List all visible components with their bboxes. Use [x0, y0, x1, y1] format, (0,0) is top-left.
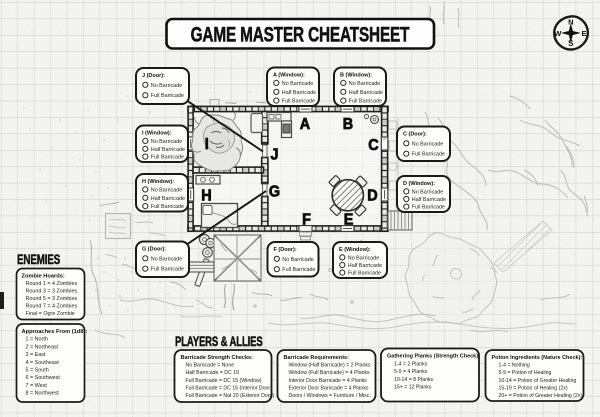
- svg-text:Zombie Hoards:: Zombie Hoards:: [22, 274, 65, 280]
- svg-text:Full Barricade: Full Barricade: [151, 93, 184, 99]
- svg-text:F: F: [302, 211, 311, 229]
- svg-text:3 = East: 3 = East: [26, 352, 46, 358]
- svg-text:Half Barricade: Half Barricade: [349, 90, 383, 96]
- svg-text:G: G: [269, 183, 280, 201]
- svg-text:6 = Southwest: 6 = Southwest: [26, 375, 61, 381]
- svg-text:C (Door):: C (Door):: [403, 132, 427, 138]
- svg-text:15+ = 12 Planks: 15+ = 12 Planks: [394, 385, 432, 391]
- svg-text:No Barricade: No Barricade: [349, 81, 380, 87]
- svg-text:J: J: [270, 146, 278, 164]
- svg-text:Full Barricade: Full Barricade: [349, 99, 382, 105]
- svg-text:2 = Northeast: 2 = Northeast: [26, 344, 59, 350]
- svg-text:No Barricade: No Barricade: [412, 141, 443, 147]
- svg-text:1 = North: 1 = North: [26, 337, 48, 343]
- svg-text:No Barricade: No Barricade: [282, 257, 313, 263]
- svg-text:No Barricade: No Barricade: [412, 189, 443, 195]
- svg-text:Half Barricade: Half Barricade: [348, 263, 382, 269]
- svg-text:Full Barricade: Full Barricade: [282, 267, 315, 273]
- svg-text:5-9 = 4 Planks: 5-9 = 4 Planks: [394, 369, 428, 375]
- svg-text:Half Barricade: Half Barricade: [151, 147, 185, 153]
- svg-text:S: S: [568, 39, 574, 48]
- svg-text:Final = Ogre Zombie: Final = Ogre Zombie: [26, 311, 75, 317]
- svg-text:No Barricade: No Barricade: [151, 256, 182, 262]
- svg-text:10-14 = Potion of Greater Heal: 10-14 = Potion of Greater Healing: [499, 378, 577, 384]
- svg-text:Full Barricade = DC 15 (Interi: Full Barricade = DC 15 (Interior Door): [186, 385, 273, 391]
- svg-text:8 = Northwest: 8 = Northwest: [26, 391, 60, 397]
- svg-text:Window (Half Barricade) = 2 Pl: Window (Half Barricade) = 2 Planks: [289, 363, 371, 369]
- svg-text:H (Window):: H (Window):: [142, 179, 174, 185]
- svg-text:I (Window):: I (Window):: [142, 131, 172, 137]
- svg-text:20+ = Potion of Greater Healin: 20+ = Potion of Greater Healing (2x): [499, 393, 583, 399]
- svg-text:No Barricade: No Barricade: [151, 83, 182, 89]
- svg-text:F (Door):: F (Door):: [274, 247, 297, 253]
- svg-text:7 = West: 7 = West: [26, 383, 48, 389]
- svg-text:Full Barricade: Full Barricade: [412, 205, 445, 211]
- svg-text:Approaches From (1d8):: Approaches From (1d8):: [22, 329, 88, 335]
- svg-text:PLAYERS & ALLIES: PLAYERS & ALLIES: [175, 333, 263, 349]
- svg-text:5 = South: 5 = South: [26, 368, 49, 374]
- svg-text:10-14 = 8 Planks: 10-14 = 8 Planks: [394, 377, 433, 383]
- svg-text:Round 1 = 4 Zombies: Round 1 = 4 Zombies: [26, 281, 78, 287]
- svg-text:ENEMIES: ENEMIES: [17, 251, 60, 267]
- svg-text:Full Barricade: Full Barricade: [348, 271, 381, 277]
- svg-text:Full Barricade: Full Barricade: [151, 204, 184, 210]
- svg-text:H: H: [201, 187, 211, 205]
- svg-text:W: W: [554, 29, 562, 38]
- svg-text:1-4 = Nothing: 1-4 = Nothing: [499, 363, 530, 369]
- svg-text:Full Barricade = DC 15 (Window: Full Barricade = DC 15 (Window): [186, 378, 262, 384]
- svg-text:D (Window):: D (Window):: [403, 181, 435, 187]
- svg-text:Doors / Windows = Furniture /: Doors / Windows = Furniture / Misc.: [289, 393, 371, 399]
- svg-text:A: A: [300, 115, 310, 133]
- svg-text:Half Barricade = DC 10: Half Barricade = DC 10: [186, 370, 240, 376]
- svg-text:No Barricade: No Barricade: [282, 81, 313, 87]
- svg-text:Half Barricade: Half Barricade: [412, 197, 446, 203]
- svg-text:B (Window):: B (Window):: [340, 73, 372, 79]
- svg-text:Barricade Strength Checks:: Barricade Strength Checks:: [181, 355, 254, 361]
- svg-text:No Barricade = None: No Barricade = None: [186, 363, 235, 369]
- svg-text:B: B: [343, 115, 353, 133]
- svg-text:4 = Southeast: 4 = Southeast: [26, 360, 60, 366]
- svg-text:1-4 = 2 Planks: 1-4 = 2 Planks: [394, 361, 428, 367]
- svg-text:Potion Ingredients (Nature Che: Potion Ingredients (Nature Check):: [492, 355, 583, 361]
- svg-text:Full Barricade: Full Barricade: [412, 152, 445, 158]
- svg-text:E: E: [581, 29, 586, 38]
- svg-text:Round 3 = 3 Zombies: Round 3 = 3 Zombies: [26, 289, 78, 295]
- svg-text:GAME MASTER CHEATSHEET: GAME MASTER CHEATSHEET: [191, 22, 410, 46]
- svg-text:N: N: [568, 18, 573, 27]
- svg-text:C: C: [368, 136, 378, 154]
- svg-text:No Barricade: No Barricade: [348, 255, 379, 261]
- svg-text:5-9 = Potion of Healing: 5-9 = Potion of Healing: [499, 370, 552, 376]
- svg-text:No Barricade: No Barricade: [151, 187, 182, 193]
- svg-text:15-19 = Potion of Healing (2x): 15-19 = Potion of Healing (2x): [499, 385, 568, 391]
- svg-text:Window (Full Barricade) = 4 Pl: Window (Full Barricade) = 4 Planks: [289, 370, 371, 376]
- svg-text:D: D: [367, 187, 377, 205]
- svg-text:Half Barricade: Half Barricade: [282, 90, 316, 96]
- svg-text:J (Door):: J (Door):: [142, 73, 165, 79]
- svg-text:Full Barricade = Nat 20 (Exter: Full Barricade = Nat 20 (Exterior Door): [186, 393, 275, 399]
- svg-text:Full Barricade: Full Barricade: [151, 267, 184, 273]
- svg-text:Full Barricade: Full Barricade: [151, 155, 184, 161]
- svg-text:Half Barricade: Half Barricade: [151, 196, 185, 202]
- svg-text:Full Barricade: Full Barricade: [282, 99, 315, 105]
- svg-text:Barricade Requirements:: Barricade Requirements:: [284, 355, 350, 361]
- svg-text:G (Door):: G (Door):: [142, 247, 166, 253]
- svg-text:Exterior Door Barricade = 4 Pl: Exterior Door Barricade = 4 Planks: [289, 385, 369, 391]
- svg-text:I: I: [205, 135, 209, 153]
- svg-text:Round 5 = 3 Zombies: Round 5 = 3 Zombies: [26, 296, 78, 302]
- svg-text:Gathering Planks (Strength Che: Gathering Planks (Strength Check):: [387, 354, 480, 360]
- svg-text:Round 7 = 4 Zombies: Round 7 = 4 Zombies: [26, 304, 78, 310]
- svg-text:Interior Door Barricade = 4 Pl: Interior Door Barricade = 4 Planks: [289, 378, 368, 384]
- svg-text:No Barricade: No Barricade: [151, 139, 182, 145]
- svg-text:E: E: [344, 211, 354, 229]
- svg-text:A (Window):: A (Window):: [273, 73, 305, 79]
- svg-text:E (Window):: E (Window):: [339, 247, 371, 253]
